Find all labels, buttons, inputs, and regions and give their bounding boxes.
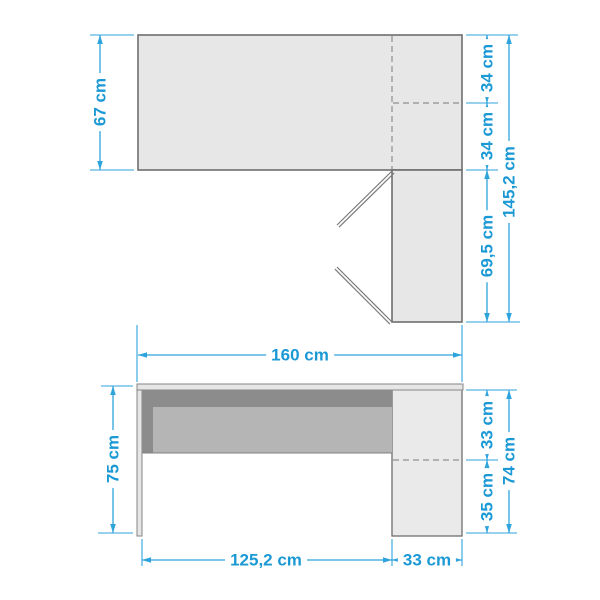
dim-label-cabinet-lower: 35 cm [478,468,497,526]
corner-brace-upper-line1 [337,171,392,225]
top-view-return-panel [392,170,462,322]
dim-label-bottom-cabinet: 33 cm [398,551,456,570]
corner-brace-upper-line2 [339,173,394,227]
front-view [137,384,463,536]
top-view [138,35,462,324]
dim-label-cabinet-upper: 33 cm [478,396,497,454]
front-desktop-top [137,384,463,390]
dim-label-bottom-desk: 125,2 cm [225,551,307,570]
dim-label-cabinet-height: 74 cm [500,432,519,490]
dim-label-right-lower: 34 cm [478,107,497,165]
corner-brace-lower-line1 [337,267,392,322]
dim-label-return-depth: 69,5 cm [478,210,497,282]
front-modesty-panel [153,407,392,453]
front-left-leg [137,390,142,536]
front-cabinet [392,388,462,536]
dim-label-overall-depth: 145,2 cm [500,141,519,223]
dim-label-depth-left: 67 cm [91,73,110,131]
corner-brace-lower-line2 [335,269,390,324]
dim-label-height-left: 75 cm [104,430,123,488]
dim-label-right-upper: 34 cm [478,39,497,97]
dim-label-overall-width: 160 cm [266,346,334,365]
dimension-diagram: 67 cm 34 cm 34 cm 69,5 cm 145,2 cm 160 c… [0,0,600,600]
